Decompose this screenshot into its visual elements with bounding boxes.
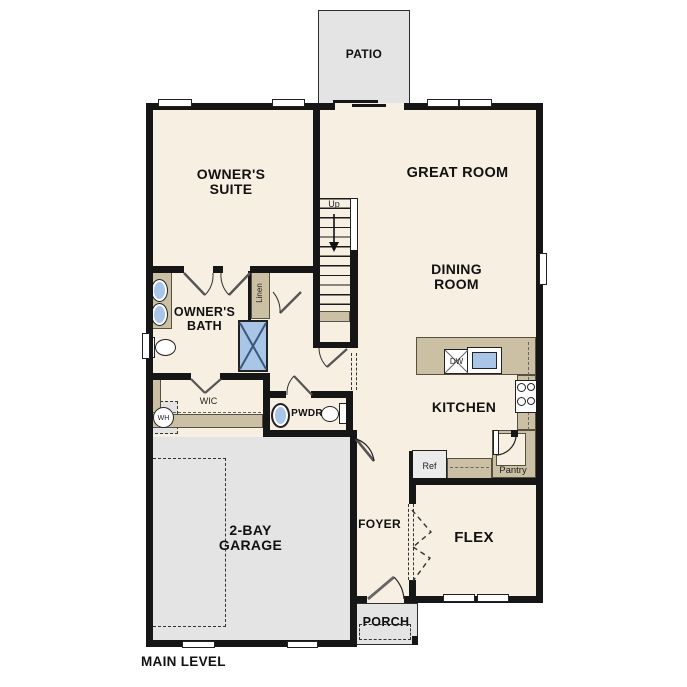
room-label-owners-bath: OWNER'S BATH (167, 306, 242, 333)
sliding-door-panel (352, 104, 386, 107)
stairs (318, 198, 351, 313)
cased-opening-dashed (351, 353, 353, 390)
wall-suite-bath-b (250, 266, 313, 273)
room-label-flex: FLEX (446, 530, 502, 545)
room-label-porch: PORCH (356, 615, 416, 630)
window (459, 99, 492, 107)
room-label-owners-suite: OWNER'S SUITE (181, 167, 281, 197)
room-label-pwdr: PWDR (289, 406, 325, 421)
window (443, 594, 475, 602)
stair-up-label: Up (324, 199, 344, 209)
room-label-great-room: GREAT ROOM (395, 166, 520, 181)
window (477, 594, 509, 602)
dishwasher-label: DW (444, 357, 469, 367)
shower (238, 320, 268, 372)
kitchen-counter-bottom-run (447, 458, 492, 480)
cased-opening-dashed (356, 353, 358, 390)
flex-opening-dashed (413, 504, 415, 580)
wall-flex-top (409, 478, 543, 485)
wall-garage-bottom (146, 640, 357, 647)
room-label-foyer: FOYER (352, 517, 407, 532)
window (158, 99, 192, 107)
wall-kitchen-south (263, 430, 357, 437)
garage-door-panel (182, 641, 215, 648)
wall-bath-wic-a (146, 373, 191, 380)
pantry-label: Pantry (490, 466, 536, 476)
wall-pwdr-top-a (263, 391, 286, 398)
under-stair-dashed-line (318, 321, 350, 323)
label-line: OWNER'S (167, 306, 242, 320)
pantry-door-jamb (511, 430, 518, 437)
flex-opening-dashed (408, 504, 410, 580)
wall-closet-bottom (313, 342, 354, 348)
refrigerator-label: Ref (412, 461, 447, 471)
wall-suite-bath-mid (213, 266, 223, 273)
garage-door-panel (287, 641, 318, 648)
label-line: GARAGE (213, 538, 288, 553)
wall-flex-left-lower (409, 580, 416, 603)
label-line: DINING (420, 262, 493, 277)
vanity-sink-icon (151, 279, 168, 302)
room-label-kitchen: KITCHEN (428, 400, 500, 415)
plan-title: MAIN LEVEL (141, 654, 281, 669)
room-label-dining: DINING ROOM (420, 262, 493, 292)
window (539, 253, 547, 285)
water-heater-label: WH (153, 414, 174, 424)
label-line: ROOM (420, 277, 493, 292)
burner-icon (527, 397, 535, 405)
wall-stair-right (350, 250, 358, 348)
pwdr-sink-icon (271, 403, 290, 428)
pantry-door-leaf (493, 430, 499, 455)
wall-wic-right (263, 373, 270, 437)
room-label-garage: 2-BAY GARAGE (213, 523, 288, 553)
window (427, 99, 459, 107)
burner-icon (517, 383, 526, 392)
wall-right (536, 103, 543, 603)
vanity-sink-icon (151, 303, 168, 326)
wall-suite-divider (313, 103, 320, 348)
kitchen-sink (472, 352, 497, 369)
toilet-bowl (155, 339, 176, 356)
label-line: 2-BAY (213, 523, 288, 538)
sliding-door-panel (333, 100, 378, 103)
room-label-patio: PATIO (334, 47, 394, 62)
porch-post (412, 636, 418, 645)
pantry-interior (496, 433, 526, 466)
wall-suite-bath-a (146, 266, 184, 273)
burner-icon (517, 397, 526, 406)
room-label-wic: WIC (186, 396, 231, 406)
counter-dashed-line (450, 467, 489, 469)
label-line: OWNER'S (181, 167, 281, 182)
label-line: SUITE (181, 182, 281, 197)
label-line: BATH (167, 320, 242, 334)
window (142, 333, 150, 359)
front-door-opening (367, 596, 404, 603)
stair-handrail (350, 198, 358, 251)
wall-pwdr-right (346, 391, 353, 437)
linen-label: Linen (255, 278, 265, 308)
burner-icon (527, 383, 535, 391)
floor-plan: PATIO OWNER'S SUITE GREAT ROOM DINING RO… (0, 0, 687, 687)
wall-linen-left (248, 271, 251, 320)
window (272, 99, 305, 107)
